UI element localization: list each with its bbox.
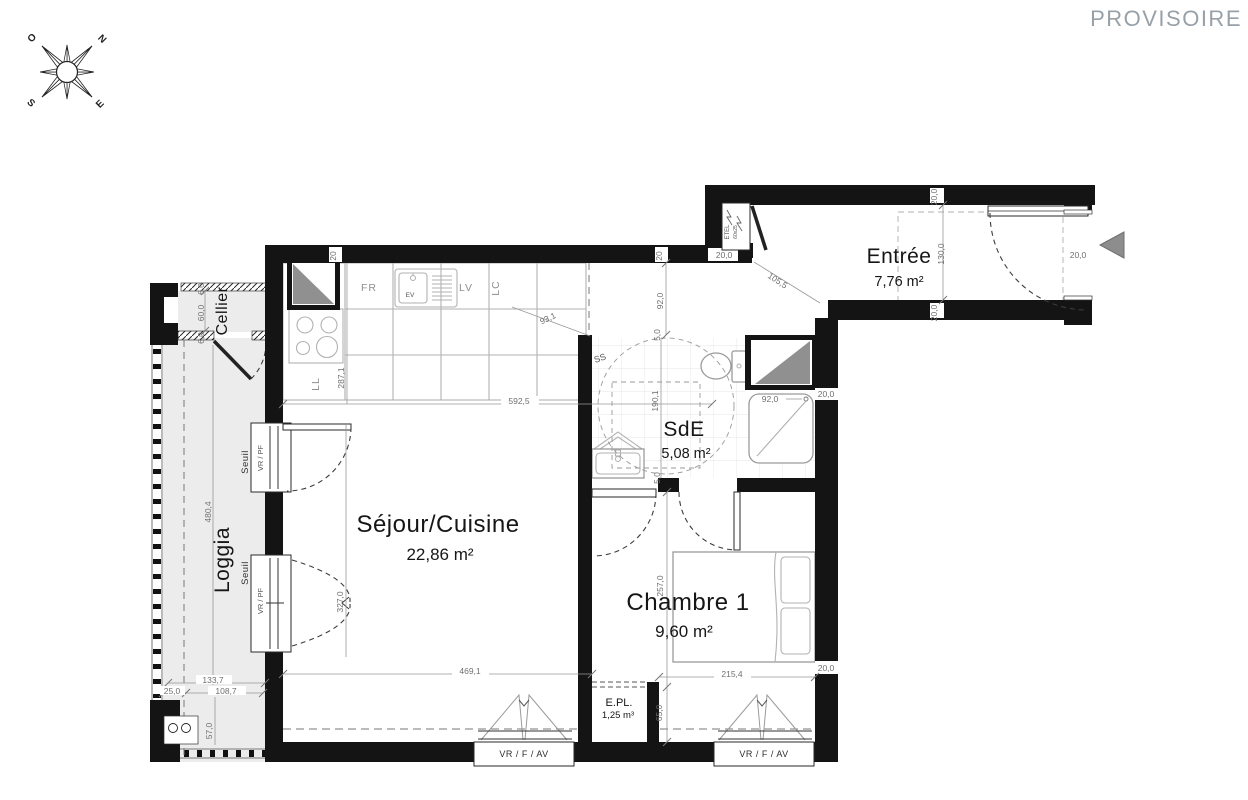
dim: 20,0	[818, 663, 835, 673]
window-vr-pf-1: VR / PF	[251, 423, 351, 492]
dim: 20,0	[929, 304, 939, 321]
dim: 6,0	[196, 332, 206, 344]
elec-panel: ETEL 60x25	[722, 203, 766, 250]
elec-panel-size: 60x25	[733, 225, 739, 239]
dim: 60,0	[196, 304, 206, 321]
window-vr-f-av-1: VR / F / AV	[474, 695, 574, 766]
cooktop-icon	[289, 309, 343, 363]
rainwater-pipe-icon	[169, 724, 178, 733]
window-label: VR / PF	[256, 587, 265, 614]
floor-plan-page: PROVISOIRE O N S E	[0, 0, 1248, 800]
washer-label: LL	[310, 377, 322, 391]
room-area-entree: 7,76 m²	[874, 274, 923, 290]
window-label: VR / PF	[256, 444, 265, 471]
window-swing	[287, 427, 351, 491]
rainwater-pipe-icon	[182, 724, 191, 733]
dim: 108,7	[215, 686, 237, 696]
dim: 133,7	[202, 675, 224, 685]
dim: 93,1	[538, 310, 557, 326]
window-vr-f-av-2: VR / F / AV	[714, 695, 814, 766]
sde-door-leaf	[592, 489, 656, 497]
compass-west: O	[26, 32, 39, 45]
threshold-label: Seuil	[240, 561, 251, 585]
dim: 20,0	[716, 250, 733, 260]
window-leaf	[283, 424, 351, 430]
epl-volume: 1,25 m³	[602, 710, 634, 721]
compass-rose-icon: O N S E	[24, 32, 108, 111]
dim: 480,4	[203, 501, 213, 523]
dim: 592,5	[508, 396, 530, 406]
chambre-door-swing	[679, 492, 737, 550]
room-label-sejour: Séjour/Cuisine	[356, 511, 519, 538]
status-watermark: PROVISOIRE	[1090, 6, 1242, 32]
dim: 469,1	[459, 666, 481, 676]
dim: 287,1	[336, 367, 346, 389]
toilet-icon	[701, 351, 747, 382]
shower-icon	[749, 394, 813, 463]
elec-panel-label: ETEL	[725, 224, 731, 240]
room-label-sde: SdE	[663, 418, 704, 441]
room-label-chambre: Chambre 1	[626, 589, 749, 616]
dim: 105,5	[766, 270, 790, 290]
dim: 57,0	[204, 722, 214, 739]
dim: 20,0	[929, 188, 939, 205]
compass-east: E	[94, 98, 107, 111]
dim: 20	[328, 251, 338, 261]
room-area-chambre: 9,60 m²	[655, 622, 713, 641]
dim: 25,0	[164, 686, 181, 696]
dim: 327,0	[335, 591, 345, 613]
window-label: VR / F / AV	[739, 749, 788, 759]
dim: 215,4	[721, 669, 743, 679]
dim: 190,1	[650, 390, 660, 412]
lc-label: LC	[490, 280, 502, 295]
floor-plan: O N S E	[0, 0, 1248, 800]
compass-south: S	[24, 97, 37, 110]
dim: 20	[654, 251, 664, 261]
dishwasher-label: LV	[459, 282, 473, 294]
chambre-door-leaf	[734, 492, 740, 550]
dim: 92,0	[762, 394, 779, 404]
entrance-door-swing	[990, 213, 1087, 310]
threshold-label: Seuil	[240, 450, 251, 474]
dim: 5,0	[652, 329, 662, 341]
window-label: VR / F / AV	[499, 749, 548, 759]
entrance-arrow-icon	[1100, 232, 1124, 258]
dim: 130,0	[936, 243, 946, 265]
epl-label: E.PL.	[606, 697, 633, 709]
sink-label: EV	[406, 292, 415, 299]
compass-north: N	[95, 33, 108, 46]
dim: 6,0	[196, 283, 206, 295]
epl-closet: E.PL. 1,25 m³	[592, 682, 647, 742]
room-area-sejour: 22,86 m²	[406, 545, 473, 564]
dim: 20,0	[818, 389, 835, 399]
dim: 5,0	[652, 472, 662, 484]
room-label-entree: Entrée	[867, 245, 932, 268]
etel-door-leaf	[752, 206, 766, 250]
sink-icon	[395, 269, 457, 307]
room-area-sde: 5,08 m²	[661, 446, 710, 462]
fridge-label: FR	[361, 282, 377, 294]
dim: 65,0	[654, 704, 664, 721]
room-label-loggia: Loggia	[211, 527, 234, 593]
dim: 92,0	[655, 292, 665, 309]
dim: 20,0	[1070, 250, 1087, 260]
doors-windows: VR / PF VR / PF VR / F /	[251, 206, 1124, 766]
room-label-cellier: Cellier	[214, 286, 231, 335]
sde-door-swing	[593, 493, 656, 556]
